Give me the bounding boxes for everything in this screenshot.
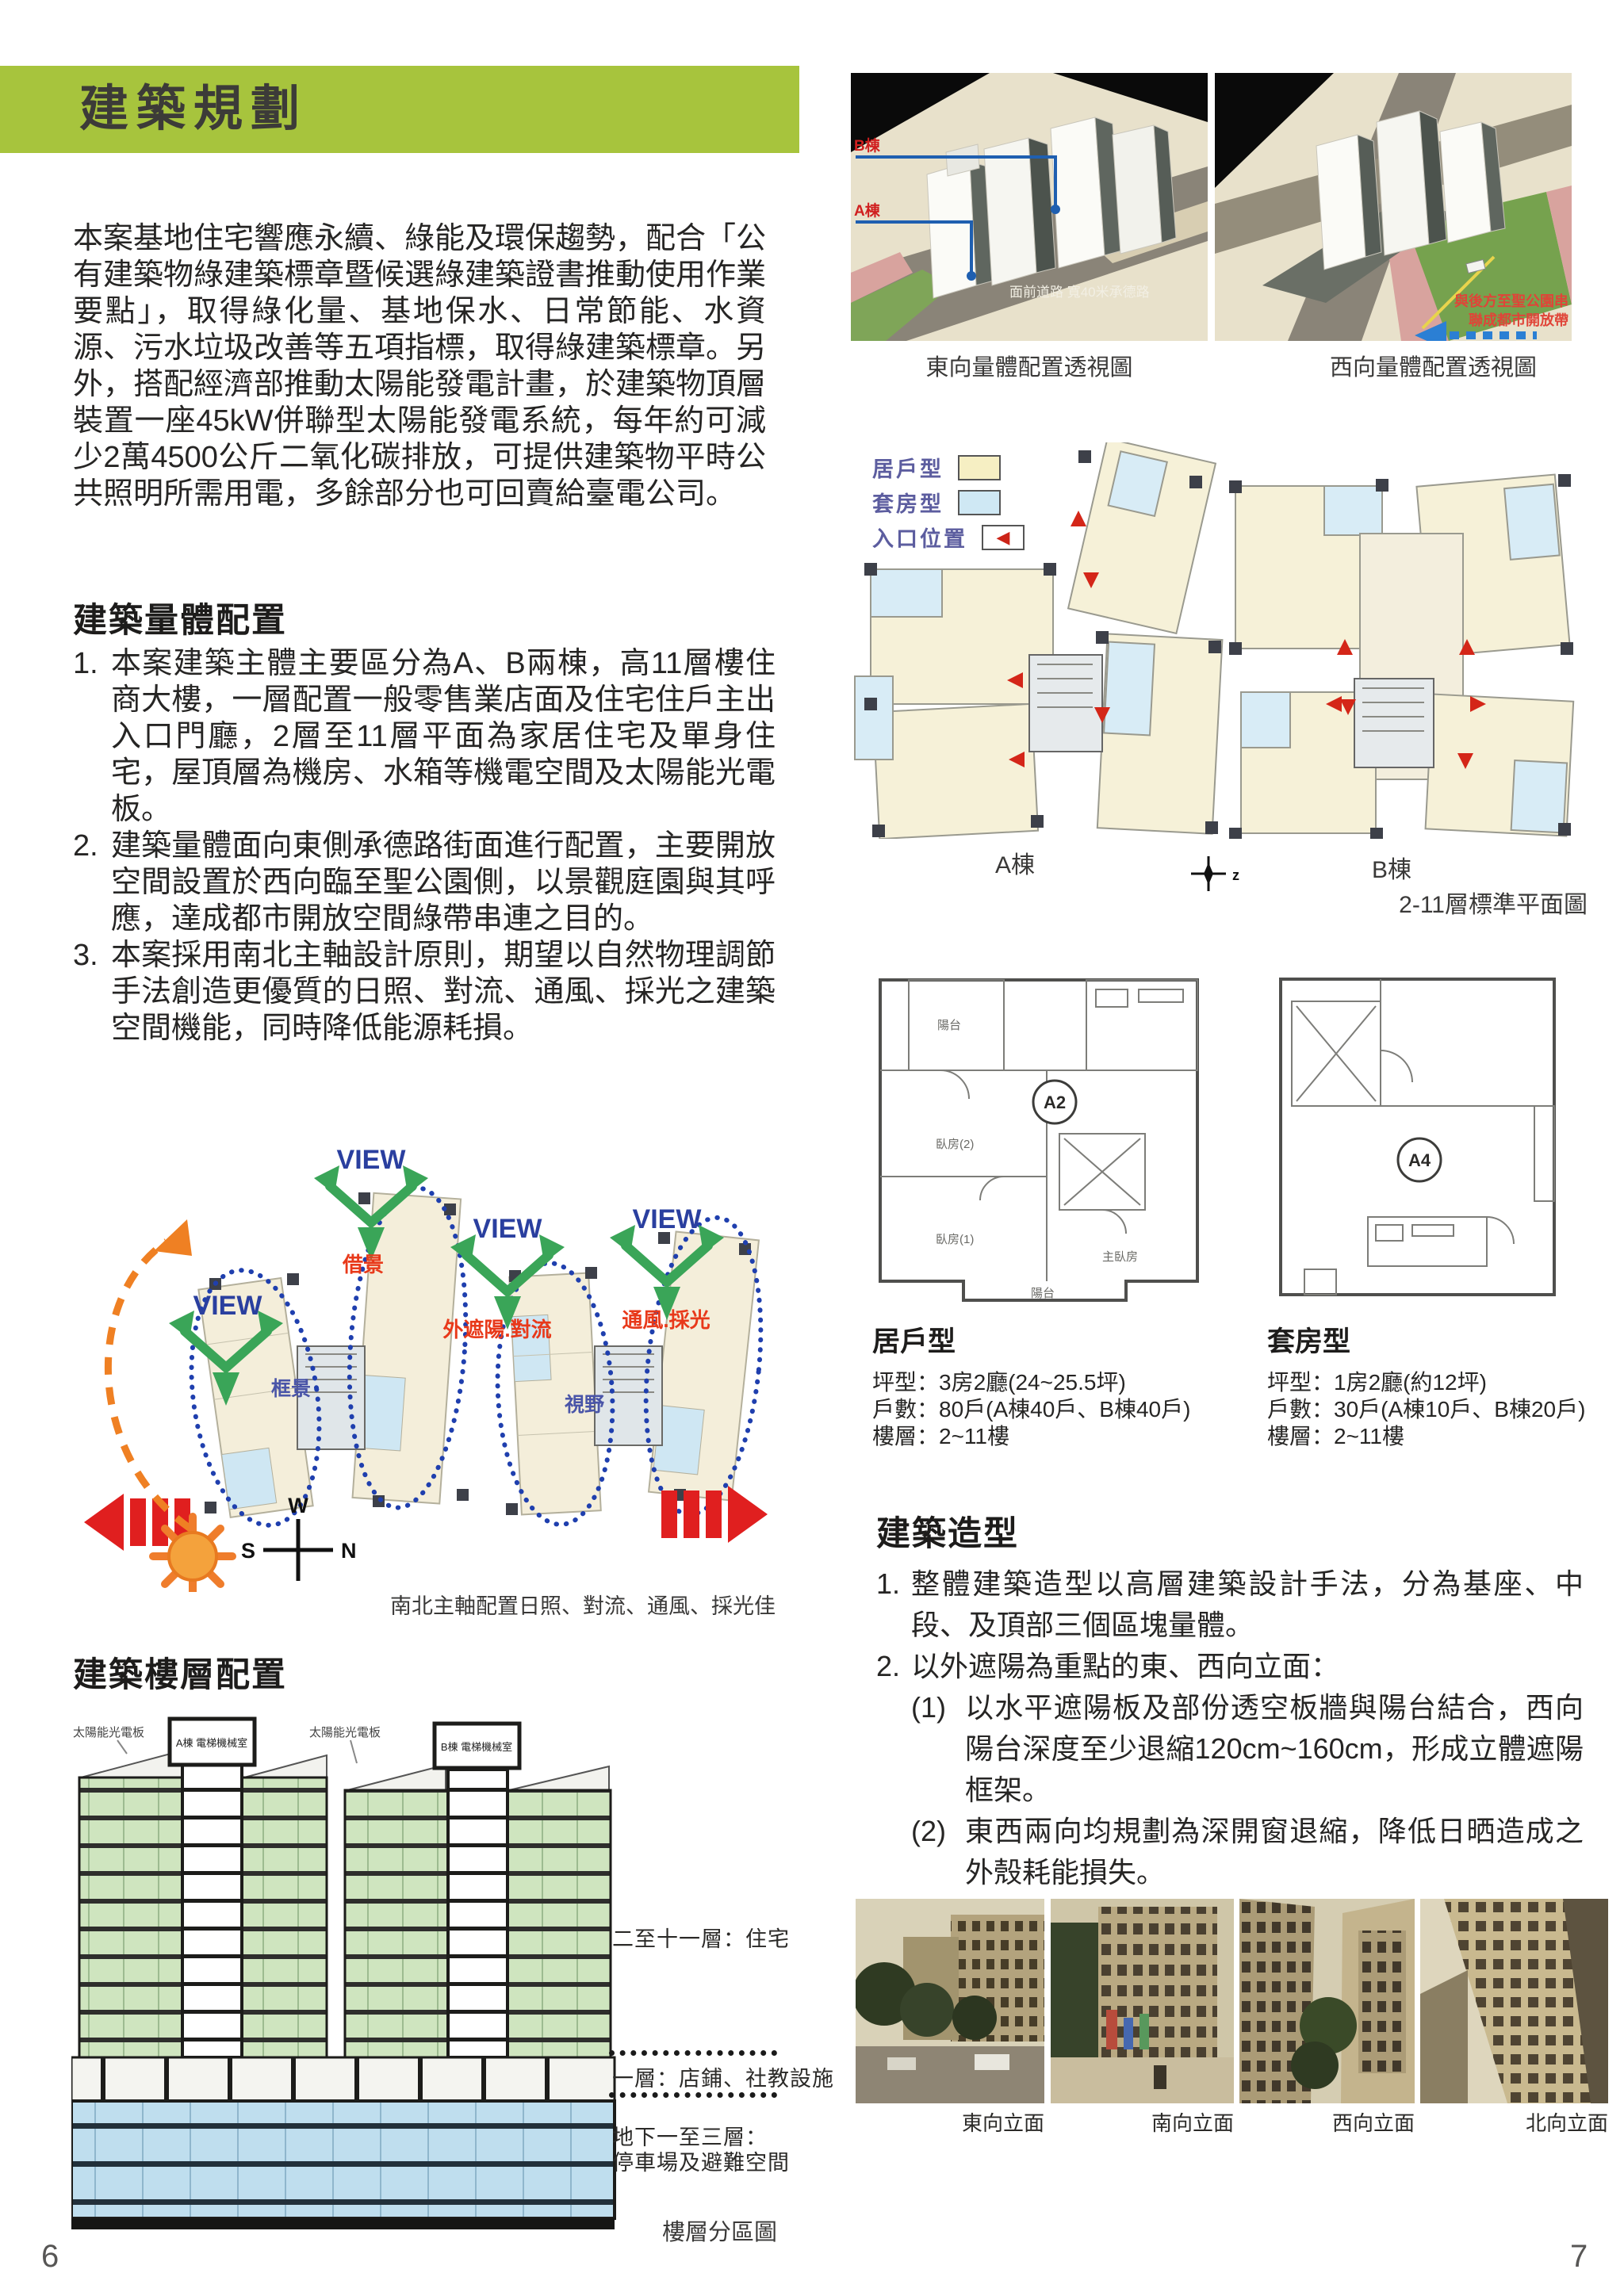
solar-panel-label: 太陽能光電板 bbox=[309, 1725, 381, 1739]
suite-detail-block: 套房型 坪型：1房2廳(約12坪) 戶數：30戶(A棟10戶、B棟20戶) 樓層… bbox=[1267, 1319, 1616, 1450]
unit-plan-a2: A2 陽台 臥房(2) 臥房(1) 主臥房 陽台 bbox=[864, 950, 1213, 1308]
render-west-caption: 西向量體配置透視圖 bbox=[1215, 349, 1572, 382]
list-number: 2. bbox=[876, 1646, 900, 1687]
a-tower-callout: A棟 bbox=[854, 201, 881, 220]
page-title: 建築規劃 bbox=[79, 66, 308, 153]
massing-heading: 建築量體配置 bbox=[73, 593, 287, 642]
photo-caption: 北向立面 bbox=[1420, 2107, 1613, 2137]
plan-a-label: A棟 bbox=[995, 845, 1035, 880]
photo-east-facade bbox=[856, 1899, 1044, 2103]
list-number: 1. bbox=[73, 645, 98, 682]
floors-heading: 建築樓層配置 bbox=[73, 1647, 287, 1697]
ground-floor-band bbox=[71, 2057, 615, 2101]
list-number: (1) bbox=[911, 1687, 946, 1728]
photo-caption: 東向立面 bbox=[856, 2107, 1049, 2137]
basement-label-line2: 停車場及避難空間 bbox=[612, 2145, 790, 2176]
suite-floors: 樓層：2~11樓 bbox=[1267, 1423, 1616, 1450]
upper-floors-label: 二至十一層：住宅 bbox=[612, 1922, 790, 1953]
plan-compass-icon: z bbox=[1189, 855, 1245, 893]
unit-count: 戶數：80戶(A棟40戶、B棟40戶) bbox=[872, 1396, 1245, 1423]
unit-detail-block: 居戶型 坪型：3房2廳(24~25.5坪) 戶數：80戶(A棟40戶、B棟40戶… bbox=[872, 1319, 1245, 1450]
list-text: 本案採用南北主軸設計原則，期望以自然物理調節手法創造更優質的日照、對流、通風、採… bbox=[111, 939, 776, 1045]
list-text: 整體建築造型以高層建築設計手法，分為基座、中段、及頂部三個區塊量體。 bbox=[911, 1567, 1584, 1641]
render-east-perspective: B棟 A棟 面前道路 寬40米承德路 bbox=[851, 73, 1208, 341]
compass-e: E bbox=[291, 1589, 305, 1592]
suite-count: 戶數：30戶(A棟10戶、B棟20戶) bbox=[1267, 1396, 1616, 1423]
tower-a-section: A棟 電梯機械室 bbox=[79, 1719, 327, 2057]
standard-plan-caption: 2-11層標準平面圖 bbox=[1348, 885, 1588, 920]
unit-a2-label: A2 bbox=[1044, 1093, 1066, 1112]
level-divider-dotted bbox=[609, 2092, 777, 2098]
view-label: VIEW bbox=[337, 1145, 407, 1175]
sun-path-arrowhead-icon bbox=[154, 1219, 192, 1256]
list-number: 2. bbox=[73, 828, 98, 864]
view-label: VIEW bbox=[633, 1204, 703, 1234]
list-text: 建築量體面向東側承德路街面進行配置，主要開放空間設置於西向臨至聖公園側，以景觀庭… bbox=[111, 829, 776, 936]
vista-label: 視野 bbox=[565, 1393, 604, 1416]
page-number-left: 6 bbox=[41, 2239, 59, 2275]
compass-icon bbox=[263, 1519, 333, 1581]
massing-list: 1. 本案建築主體主要區分為A、B兩棟，高11層樓住商大樓，一層配置一般零售業店… bbox=[73, 645, 776, 1047]
tower-a-machine-room-label: A棟 電梯機械室 bbox=[176, 1737, 247, 1749]
room-label-bed1: 臥房(1) bbox=[936, 1233, 974, 1246]
tower-b-machine-room-label: B棟 電梯機械室 bbox=[441, 1741, 512, 1753]
borrow-view-label: 借景 bbox=[342, 1253, 384, 1276]
list-item: 1. 整體建築造型以高層建築設計手法，分為基座、中段、及頂部三個區塊量體。 bbox=[876, 1563, 1584, 1646]
photo-west-facade bbox=[1239, 1899, 1415, 2103]
list-number: 3. bbox=[73, 937, 98, 974]
view-label: VIEW bbox=[473, 1214, 543, 1244]
plan-a-tower bbox=[855, 442, 1222, 839]
list-text: 以水平遮陽板及部份透空板牆與陽台結合，西向陽台深度至少退縮120cm~160cm… bbox=[965, 1691, 1584, 1806]
document-spread: 建築規劃 本案基地住宅響應永續、綠能及環保趨勢，配合「公有建築物綠建築標章暨候選… bbox=[0, 0, 1624, 2296]
list-subitem: (1) 以水平遮陽板及部份透空板牆與陽台結合，西向陽台深度至少退縮120cm~1… bbox=[876, 1687, 1584, 1811]
axis-view-diagram: VIEW VIEW VIEW VIEW 借景 外遮陽.對流 通風.採光 框景 視… bbox=[71, 1116, 776, 1592]
intro-paragraph: 本案基地住宅響應永續、綠能及環保趨勢，配合「公有建築物綠建築標章暨候選綠建築證書… bbox=[73, 220, 766, 512]
basement-band bbox=[71, 2101, 615, 2218]
room-label-bed2: 臥房(2) bbox=[936, 1138, 974, 1151]
unit-floors: 樓層：2~11樓 bbox=[872, 1423, 1245, 1450]
shade-convection-label: 外遮陽.對流 bbox=[442, 1318, 551, 1341]
plan-cluster-b bbox=[491, 1212, 774, 1528]
foundation-bar bbox=[71, 2218, 615, 2229]
park-link-note-line1: 與後方至聖公園串 bbox=[1454, 293, 1568, 309]
list-number: 1. bbox=[876, 1563, 900, 1605]
room-label-balcony-top: 陽台 bbox=[937, 1019, 961, 1032]
list-text: 本案建築主體主要區分為A、B兩棟，高11層樓住商大樓，一層配置一般零售業店面及住… bbox=[111, 647, 776, 826]
unit-a4-label: A4 bbox=[1408, 1150, 1431, 1170]
list-item: 3. 本案採用南北主軸設計原則，期望以自然物理調節手法創造更優質的日照、對流、通… bbox=[73, 937, 776, 1047]
b-tower-callout: B棟 bbox=[854, 136, 881, 155]
suite-size: 坪型：1房2廳(約12坪) bbox=[1267, 1369, 1616, 1396]
view-label: VIEW bbox=[193, 1291, 263, 1321]
vent-light-label: 通風.採光 bbox=[622, 1308, 710, 1332]
park-link-note-line2: 聯成都市開放帶 bbox=[1469, 312, 1568, 328]
compass-w: W bbox=[288, 1494, 308, 1517]
compass-s: S bbox=[241, 1539, 255, 1563]
list-subitem: (2) 東西兩向均規劃為深開窗退縮，降低日晒造成之外殼耗能損失。 bbox=[876, 1811, 1584, 1893]
sun-path-arc bbox=[108, 1242, 190, 1529]
axis-diagram-caption: 南北主軸配置日照、對流、通風、採光佳 bbox=[317, 1589, 776, 1620]
plan-b-tower bbox=[1229, 474, 1573, 839]
section-caption: 樓層分區圖 bbox=[619, 2214, 777, 2247]
render-east-caption: 東向量體配置透視圖 bbox=[851, 349, 1208, 382]
compass-z-label: z bbox=[1232, 867, 1239, 883]
unit-plan-a4: A4 bbox=[1257, 955, 1578, 1311]
compass-n: N bbox=[341, 1539, 357, 1563]
list-item: 2. 建築量體面向東側承德路街面進行配置，主要開放空間設置於西向臨至聖公園側，以… bbox=[73, 828, 776, 937]
ground-floor-label: 一層：店鋪、社教設施 bbox=[612, 2061, 834, 2092]
frame-view-label: 框景 bbox=[271, 1378, 311, 1400]
standard-floor-plans bbox=[841, 442, 1586, 839]
room-label-balcony: 陽台 bbox=[1031, 1287, 1055, 1300]
list-text: 以外遮陽為重點的東、西向立面： bbox=[911, 1650, 1339, 1682]
styling-heading: 建築造型 bbox=[876, 1506, 1019, 1556]
photo-caption: 西向立面 bbox=[1239, 2107, 1419, 2137]
list-text: 東西兩向均規劃為深開窗退縮，降低日晒造成之外殼耗能損失。 bbox=[965, 1815, 1584, 1888]
sun-icon bbox=[153, 1517, 232, 1592]
render-west-perspective: 與後方至聖公園串 聯成都市開放帶 bbox=[1215, 73, 1572, 341]
suite-type-name: 套房型 bbox=[1267, 1319, 1616, 1360]
list-item: 2. 以外遮陽為重點的東、西向立面： bbox=[876, 1646, 1584, 1687]
photo-north-facade bbox=[1420, 1899, 1608, 2103]
tower-b-section: B棟 電梯機械室 bbox=[345, 1724, 611, 2057]
unit-type-name: 居戶型 bbox=[872, 1319, 1245, 1360]
solar-panel-label: 太陽能光電板 bbox=[73, 1725, 144, 1739]
road-label: 面前道路 寬40米承德路 bbox=[1009, 285, 1150, 300]
photo-caption: 南向立面 bbox=[1051, 2107, 1239, 2137]
level-divider-dotted bbox=[609, 2050, 777, 2056]
unit-size: 坪型：3房2廳(24~25.5坪) bbox=[872, 1369, 1245, 1396]
room-label-master: 主臥房 bbox=[1102, 1250, 1138, 1264]
page-number-right: 7 bbox=[1570, 2239, 1588, 2275]
styling-list: 1. 整體建築造型以高層建築設計手法，分為基座、中段、及頂部三個區塊量體。 2.… bbox=[876, 1563, 1584, 1893]
list-item: 1. 本案建築主體主要區分為A、B兩棟，高11層樓住商大樓，一層配置一般零售業店… bbox=[73, 645, 776, 828]
building-section-diagram: A棟 電梯機械室 B棟 電梯機械室 太陽能光電板 太陽能光電板 bbox=[71, 1705, 620, 2236]
photo-south-facade bbox=[1051, 1899, 1234, 2103]
plan-b-label: B棟 bbox=[1372, 850, 1411, 885]
list-number: (2) bbox=[911, 1811, 946, 1852]
